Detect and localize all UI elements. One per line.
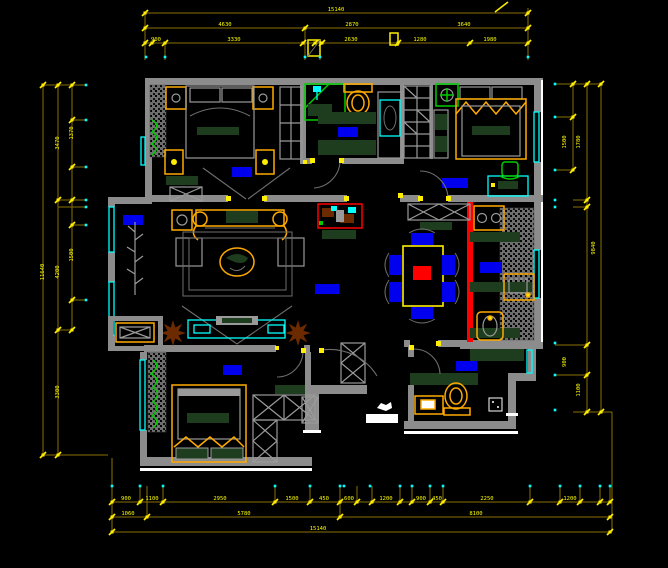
door-hinge bbox=[344, 196, 349, 201]
counter bbox=[470, 282, 532, 292]
door-hinge bbox=[275, 346, 279, 350]
entry-label-block bbox=[366, 414, 398, 423]
hall-closet bbox=[404, 86, 430, 158]
bedroom3 bbox=[172, 346, 315, 462]
bed-pillow bbox=[472, 126, 510, 135]
nightstand bbox=[253, 87, 273, 109]
witness-dots-right bbox=[554, 83, 557, 412]
dim-text: 1500 bbox=[285, 496, 298, 502]
dim-text: 9840 bbox=[591, 241, 597, 254]
room-label-block bbox=[315, 284, 339, 294]
dining-area bbox=[385, 204, 470, 323]
bathroom1 bbox=[305, 84, 402, 188]
dim-text: 1780 bbox=[576, 135, 582, 148]
door-hinge bbox=[418, 196, 423, 201]
bathroom-sink bbox=[415, 396, 443, 414]
direction-icon bbox=[377, 402, 392, 411]
cad-viewport: 15140 4630 2870 3640 900 3330 2630 1280 … bbox=[0, 0, 668, 568]
armchair bbox=[278, 238, 304, 266]
toilet-icon bbox=[444, 383, 470, 415]
window-bedroom3-left bbox=[140, 360, 145, 430]
witness-dots-top bbox=[145, 56, 530, 59]
dim-text: 2630 bbox=[344, 37, 357, 43]
cabinet bbox=[435, 136, 447, 152]
dim-text: 3470 bbox=[55, 136, 61, 149]
dim-text: 3330 bbox=[227, 37, 240, 43]
dim-text: 450 bbox=[319, 496, 329, 502]
coffee-table bbox=[220, 248, 254, 276]
dim-text: 5780 bbox=[237, 511, 250, 517]
stove bbox=[474, 206, 504, 230]
headboard-panel bbox=[492, 87, 522, 99]
dim-text: 15140 bbox=[310, 526, 327, 532]
lamp-icon bbox=[259, 94, 267, 102]
lamp-icon bbox=[262, 159, 268, 165]
dimension-lines-bottom: 900 1100 2950 1500 450 600 1200 900 450 … bbox=[112, 412, 612, 532]
counter bbox=[410, 373, 478, 385]
window-bedroom1-left bbox=[141, 137, 145, 165]
dim-text: 900 bbox=[416, 496, 426, 502]
door-hinge bbox=[446, 196, 451, 201]
lamp-icon bbox=[171, 159, 177, 165]
blanket-zigzag bbox=[456, 102, 526, 114]
living-room bbox=[123, 210, 339, 346]
shower-head-icon bbox=[313, 86, 321, 92]
window-living-left-1 bbox=[109, 207, 114, 252]
dim-text: 900 bbox=[562, 357, 568, 367]
wardrobe bbox=[280, 87, 302, 159]
dimension-lines-top: 15140 4630 2870 3640 900 3330 2630 1280 … bbox=[145, 2, 528, 60]
corridor-hinges bbox=[303, 160, 403, 201]
door-swing bbox=[420, 171, 448, 199]
bed-cover-line bbox=[190, 108, 250, 116]
room-label-block bbox=[123, 215, 143, 225]
tv-cabinet-door bbox=[268, 325, 284, 333]
counter bbox=[470, 232, 520, 242]
dim-text: 1280 bbox=[413, 37, 426, 43]
dim-text: 900 bbox=[121, 496, 131, 502]
dim-text: 600 bbox=[344, 496, 354, 502]
lamp-icon bbox=[172, 94, 180, 102]
tv-screen bbox=[222, 318, 252, 323]
counter bbox=[470, 349, 524, 361]
door-hinge bbox=[339, 158, 344, 163]
dimension-lines-left: 11640 3470 4200 3300 1370 1500 bbox=[40, 85, 108, 455]
floor-plan-canvas: 15140 4630 2870 3640 900 3330 2630 1280 … bbox=[0, 0, 668, 568]
floor-drain bbox=[489, 398, 502, 411]
room-label-block bbox=[223, 365, 242, 375]
room-label-block bbox=[456, 361, 477, 371]
plant-icon bbox=[285, 320, 311, 346]
dim-text: 1980 bbox=[483, 37, 496, 43]
dim-text: 1100 bbox=[145, 496, 158, 502]
bed-drawer bbox=[176, 448, 208, 459]
bedroom2 bbox=[418, 84, 528, 201]
hall-cabinet bbox=[341, 343, 365, 383]
bench bbox=[166, 176, 198, 185]
door-hinge bbox=[319, 348, 324, 353]
room-label-block bbox=[480, 262, 502, 273]
dim-text: 1500 bbox=[69, 248, 75, 261]
dimension-lines-right: 1500 1780 9840 900 1100 bbox=[555, 84, 612, 412]
sink bbox=[380, 100, 400, 136]
door-swing bbox=[314, 162, 340, 188]
dim-text: 1500 bbox=[562, 135, 568, 148]
lamp-icon bbox=[177, 215, 187, 225]
witness-dots-left bbox=[85, 84, 88, 302]
headboard-panel bbox=[460, 87, 490, 99]
tv-cabinet-door bbox=[194, 325, 210, 333]
door-hinge bbox=[398, 193, 403, 198]
dim-text: 2250 bbox=[480, 496, 493, 502]
console-item bbox=[319, 221, 323, 225]
dim-text: 2950 bbox=[213, 496, 226, 502]
dim-text: 4630 bbox=[218, 22, 231, 28]
bed-pillow bbox=[187, 413, 229, 423]
desk-lamp-icon bbox=[491, 183, 495, 187]
console-item bbox=[348, 207, 356, 213]
rug-outline bbox=[183, 232, 292, 296]
headboard bbox=[178, 389, 240, 396]
door-hinge bbox=[303, 160, 307, 164]
plant-icon bbox=[160, 320, 186, 346]
vanity-cabinet bbox=[378, 92, 402, 158]
door-hinge bbox=[436, 341, 441, 346]
door-hinge bbox=[310, 158, 315, 163]
cabinet bbox=[318, 140, 376, 155]
shelf bbox=[275, 385, 305, 394]
desk-item bbox=[498, 181, 518, 189]
console-shelf bbox=[322, 230, 356, 239]
corner-table bbox=[172, 210, 192, 230]
dim-text: 1200 bbox=[379, 496, 392, 502]
headboard-panel bbox=[222, 88, 252, 102]
window-bedroom2-right bbox=[534, 112, 539, 162]
dim-text: 8100 bbox=[469, 511, 482, 517]
red-marked-wall bbox=[467, 202, 473, 342]
bedroom1 bbox=[165, 86, 302, 201]
dim-text: 1370 bbox=[69, 126, 75, 139]
room-label-block bbox=[338, 127, 358, 137]
plant-petals bbox=[440, 88, 454, 102]
dim-text: 2870 bbox=[345, 22, 358, 28]
door-swing bbox=[414, 349, 440, 374]
bathroom2 bbox=[409, 341, 524, 415]
sofa bbox=[193, 210, 287, 240]
exterior-walls bbox=[108, 78, 543, 471]
dim-text: 4200 bbox=[55, 265, 61, 278]
nightstand bbox=[166, 87, 186, 109]
door-hinge bbox=[262, 196, 267, 201]
dim-text: 1100 bbox=[576, 383, 582, 396]
witness-dots-bottom bbox=[111, 485, 612, 488]
table-plant bbox=[226, 254, 248, 263]
entry-console bbox=[318, 204, 362, 239]
branch-decoration bbox=[127, 222, 143, 295]
dim-text: 1060 bbox=[121, 511, 134, 517]
console-item bbox=[336, 210, 344, 222]
door-hinge bbox=[409, 345, 414, 350]
table-centerpiece bbox=[413, 266, 431, 280]
bed-drawer bbox=[211, 448, 243, 459]
dim-text: 15140 bbox=[328, 7, 345, 13]
dim-text: 450 bbox=[432, 496, 442, 502]
counter bbox=[318, 112, 376, 124]
toilet-icon bbox=[344, 84, 372, 115]
dim-text: 3300 bbox=[55, 385, 61, 398]
rug-inner bbox=[189, 238, 286, 290]
door-swing bbox=[277, 352, 303, 377]
cabinet bbox=[435, 114, 447, 130]
dim-text: 11640 bbox=[40, 264, 46, 281]
leader-mark bbox=[495, 2, 508, 12]
room-label-block bbox=[232, 167, 252, 177]
door-hinge bbox=[226, 196, 231, 201]
cabinet-x bbox=[120, 327, 150, 338]
sideboard bbox=[408, 204, 470, 220]
room-label-block bbox=[442, 178, 468, 188]
dim-text: 1200 bbox=[563, 496, 576, 502]
dim-text: 3640 bbox=[457, 22, 470, 28]
bed-pillow bbox=[197, 127, 239, 135]
door-swing bbox=[322, 349, 377, 376]
headboard-panel bbox=[190, 88, 220, 102]
sink-basin bbox=[384, 106, 396, 130]
door-hinge bbox=[301, 348, 306, 353]
